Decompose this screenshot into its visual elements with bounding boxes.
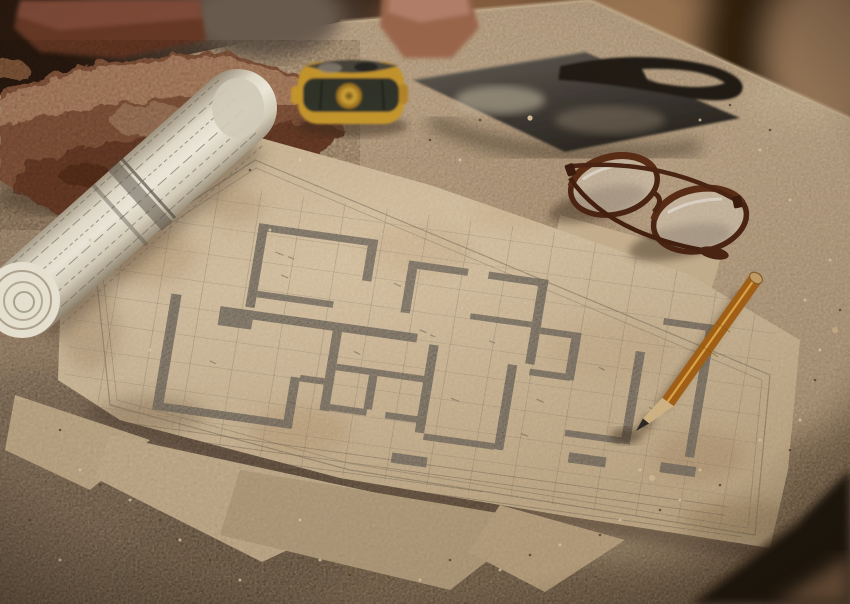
- scene-canvas: [0, 0, 850, 604]
- vignette: [0, 0, 850, 604]
- photo-frame: [0, 0, 850, 604]
